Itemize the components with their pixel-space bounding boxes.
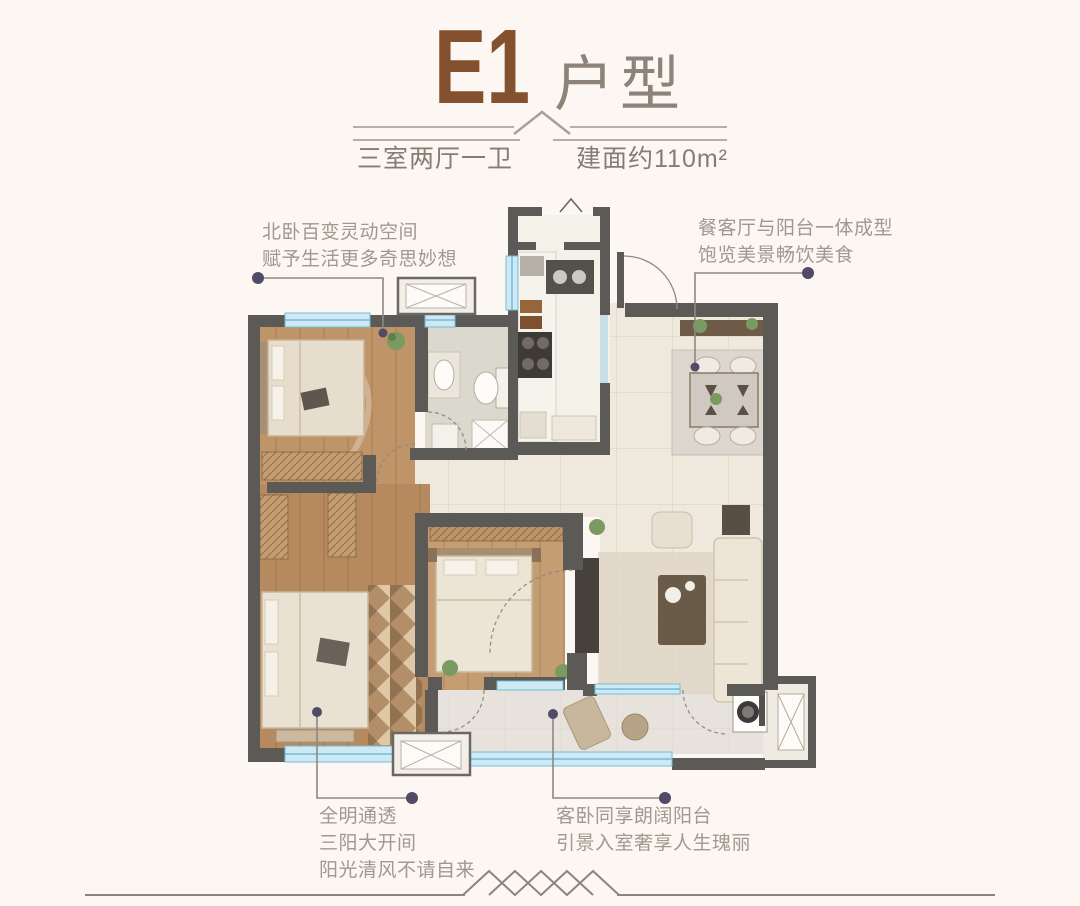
unit-code-title: E1 xyxy=(434,14,530,120)
tv-console xyxy=(575,558,599,653)
side-table xyxy=(722,505,750,535)
annotation-north-bedroom: 北卧百变灵动空间 赋予生活更多奇思妙想 xyxy=(262,219,457,273)
pouf xyxy=(622,714,648,740)
annotation-line: 阳光清风不请自来 xyxy=(319,857,475,884)
plant-icon xyxy=(710,393,722,405)
ac-platform-bottom xyxy=(393,733,470,775)
zigzag-icon xyxy=(463,871,619,895)
window xyxy=(506,256,518,310)
ac-platform-top xyxy=(398,278,475,314)
sofa xyxy=(714,538,762,702)
window xyxy=(285,313,370,327)
window xyxy=(595,684,680,694)
annotation-line: 三阳大开间 xyxy=(319,830,475,857)
plant-icon xyxy=(589,519,605,535)
sink xyxy=(434,360,454,390)
dining-chair xyxy=(694,427,720,445)
armchair xyxy=(652,512,692,548)
master-rug xyxy=(368,585,422,745)
unit-type-label: 户型 xyxy=(554,55,686,115)
spec-area: 建面约110m² xyxy=(576,147,728,172)
master-bedroom-furniture xyxy=(262,585,422,745)
annotation-master: 全明通透 三阳大开间 阳光清风不请自来 xyxy=(319,803,475,884)
window xyxy=(437,752,672,766)
dining-table xyxy=(690,373,758,427)
entry-door-arc xyxy=(624,256,677,309)
annotation-balcony: 客卧同享朗阔阳台 引景入室奢享人生瑰丽 xyxy=(556,803,751,857)
annotation-line: 全明通透 xyxy=(319,803,475,830)
storage-door-mark xyxy=(560,199,582,212)
glass-partition xyxy=(600,315,608,383)
plant-icon xyxy=(746,318,758,330)
annotation-line: 引景入室奢享人生瑰丽 xyxy=(556,830,751,857)
annotation-dining: 餐客厅与阳台一体成型 饱览美景畅饮美食 xyxy=(698,215,893,269)
toilet xyxy=(474,372,498,404)
dining-chair xyxy=(730,427,756,445)
floorplan-page: E1 户型 三室两厅一卫 建面约110m² 北卧百变灵动空间 赋予生活更多奇思妙… xyxy=(0,0,1080,906)
annotation-line: 赋予生活更多奇思妙想 xyxy=(262,246,457,273)
plant-icon xyxy=(442,660,458,676)
coffee-table xyxy=(658,575,706,645)
annotation-line: 北卧百变灵动空间 xyxy=(262,219,457,246)
window xyxy=(497,681,563,690)
zigzag-icon xyxy=(489,871,593,895)
equipment-x-rect xyxy=(778,694,804,750)
floor-plan xyxy=(0,0,1080,906)
footer-decoration xyxy=(85,871,995,895)
annotation-line: 餐客厅与阳台一体成型 xyxy=(698,215,893,242)
bed-bench xyxy=(276,730,354,742)
annotation-line: 饱览美景畅饮美食 xyxy=(698,242,893,269)
spec-rooms: 三室两厅一卫 xyxy=(357,147,513,172)
annotation-line: 客卧同享朗阔阳台 xyxy=(556,803,751,830)
